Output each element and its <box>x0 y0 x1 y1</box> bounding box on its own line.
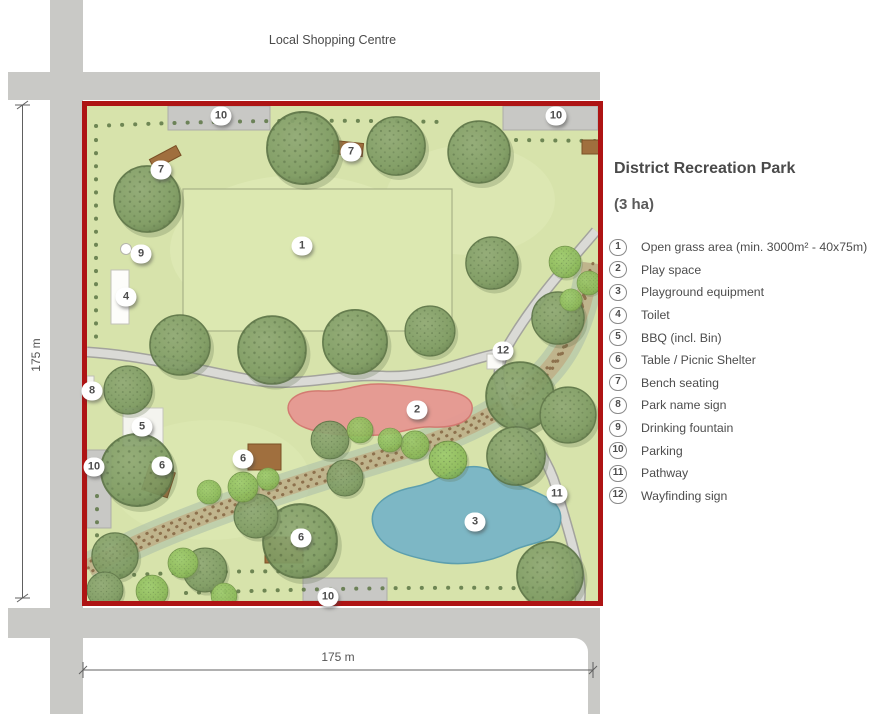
legend-number: 1 <box>609 239 627 256</box>
map-marker-park-name-sign: 8 <box>82 382 103 401</box>
legend-item-drinking-fountain: 9 Drinking fountain <box>604 417 872 440</box>
legend-subtitle: (3 ha) <box>614 196 872 213</box>
legend-title: District Recreation Park <box>614 160 872 178</box>
legend-list: 1 Open grass area (min. 3000m² - 40x75m)… <box>604 236 872 507</box>
legend-item-label: Play space <box>641 263 701 277</box>
legend-number: 9 <box>609 420 627 437</box>
legend-number: 12 <box>609 487 627 504</box>
shopping-centre-label: Local Shopping Centre <box>240 33 425 47</box>
map-marker-parking-top-left: 10 <box>211 107 232 126</box>
map-marker-bbq: 5 <box>132 418 153 437</box>
legend-panel: District Recreation Park (3 ha) 1 Open g… <box>604 160 872 507</box>
dimension-label-bottom: 175 m <box>288 650 388 664</box>
legend-item-label: Pathway <box>641 466 688 480</box>
map-marker-bench-1: 7 <box>151 161 172 180</box>
legend-item-toilet: 4 Toilet <box>604 304 872 327</box>
legend-item-label: Parking <box>641 444 683 458</box>
legend-item-label: Table / Picnic Shelter <box>641 353 756 367</box>
legend-item-wayfinding-sign: 12 Wayfinding sign <box>604 485 872 508</box>
road-right-stub <box>588 608 600 714</box>
legend-item-open-grass-area: 1 Open grass area (min. 3000m² - 40x75m) <box>604 236 872 259</box>
legend-number: 8 <box>609 397 627 414</box>
map-marker-picnic-table-1: 6 <box>152 457 173 476</box>
legend-number: 2 <box>609 261 627 278</box>
map-marker-grass-area: 1 <box>292 237 313 256</box>
map-marker-play-space: 2 <box>407 401 428 420</box>
map-marker-picnic-table-2: 6 <box>233 450 254 469</box>
map-marker-pathway: 11 <box>547 485 568 504</box>
legend-item-bbq: 5 BBQ (incl. Bin) <box>604 326 872 349</box>
legend-number: 3 <box>609 284 627 301</box>
legend-item-label: Drinking fountain <box>641 421 733 435</box>
legend-number: 7 <box>609 374 627 391</box>
road-corner-fillet <box>574 638 588 652</box>
map-marker-picnic-table-3: 6 <box>291 529 312 548</box>
legend-item-label: Playground equipment <box>641 285 764 299</box>
dimension-label-left: 175 m <box>29 325 43 385</box>
legend-item-play-space: 2 Play space <box>604 259 872 282</box>
legend-item-label: Park name sign <box>641 398 726 412</box>
legend-item-park-name-sign: 8 Park name sign <box>604 394 872 417</box>
site-plan-page: 10 10 7 7 1 9 4 12 8 2 5 6 6 10 11 3 6 1… <box>0 0 877 714</box>
legend-item-picnic-shelter: 6 Table / Picnic Shelter <box>604 349 872 372</box>
map-marker-parking-top-right: 10 <box>546 107 567 126</box>
map-marker-parking-south: 10 <box>318 588 339 607</box>
legend-item-label: Open grass area (min. 3000m² - 40x75m) <box>641 240 867 254</box>
legend-number: 10 <box>609 442 627 459</box>
open-grass-area <box>183 189 452 331</box>
legend-item-parking: 10 Parking <box>604 439 872 462</box>
map-marker-bench-2: 7 <box>341 143 362 162</box>
legend-item-label: BBQ (incl. Bin) <box>641 331 722 345</box>
legend-number: 5 <box>609 329 627 346</box>
park-map-canvas <box>87 106 598 601</box>
legend-item-bench-seating: 7 Bench seating <box>604 372 872 395</box>
map-marker-parking-west: 10 <box>84 458 105 477</box>
legend-item-label: Bench seating <box>641 376 719 390</box>
legend-item-playground-equipment: 3 Playground equipment <box>604 281 872 304</box>
legend-item-pathway: 11 Pathway <box>604 462 872 485</box>
map-marker-toilet: 4 <box>116 288 137 307</box>
road-top <box>8 72 600 100</box>
map-marker-wayfinding-sign: 12 <box>493 342 514 361</box>
legend-number: 11 <box>609 465 627 482</box>
legend-number: 6 <box>609 352 627 369</box>
bench-3 <box>582 140 598 154</box>
map-marker-playground: 3 <box>465 513 486 532</box>
road-bottom <box>8 608 600 638</box>
legend-item-label: Wayfinding sign <box>641 489 727 503</box>
road-left <box>50 0 83 714</box>
legend-item-label: Toilet <box>641 308 670 322</box>
map-marker-drinking-fountain: 9 <box>131 245 152 264</box>
legend-number: 4 <box>609 307 627 324</box>
